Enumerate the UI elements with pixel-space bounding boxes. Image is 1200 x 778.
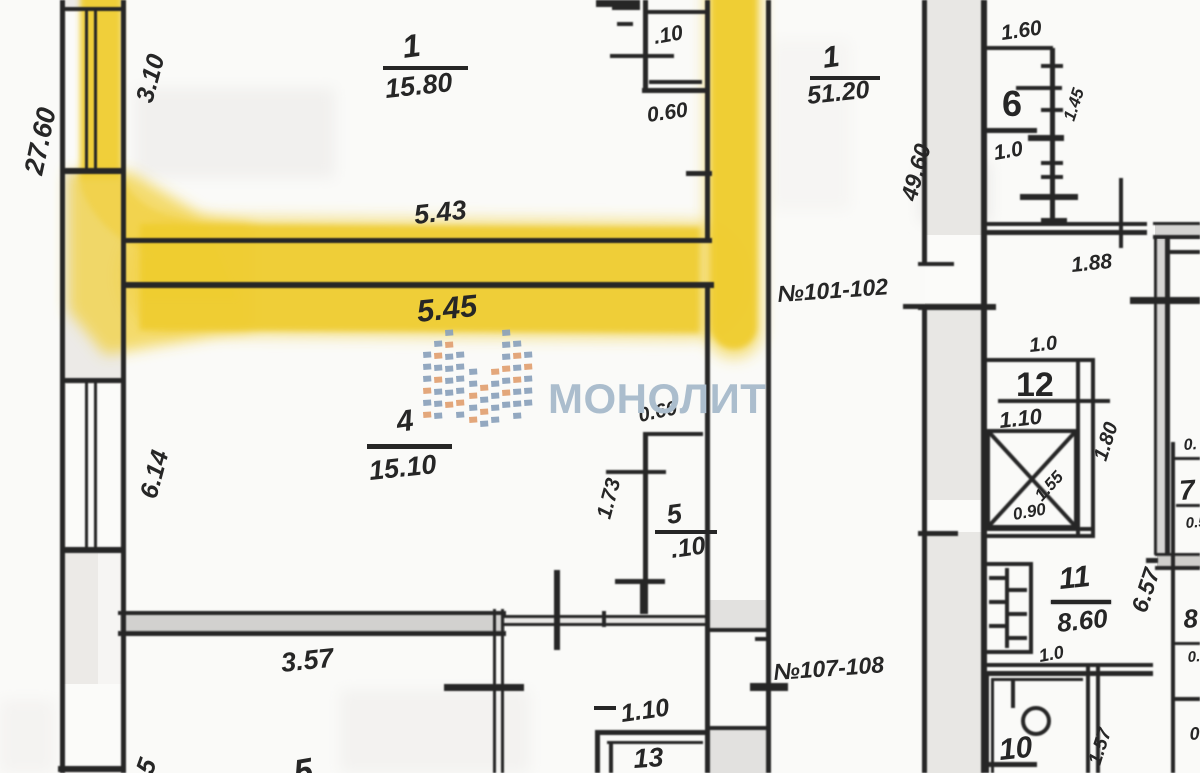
svg-text:6: 6 xyxy=(1002,83,1022,124)
svg-text:0.5: 0.5 xyxy=(1185,514,1200,532)
svg-text:0: 0 xyxy=(1189,723,1200,744)
svg-text:8.60: 8.60 xyxy=(1055,603,1109,638)
svg-text:5.43: 5.43 xyxy=(412,195,467,230)
svg-text:0.: 0. xyxy=(1183,436,1197,454)
svg-text:1.0: 1.0 xyxy=(1037,642,1065,666)
svg-text:10: 10 xyxy=(997,731,1034,767)
svg-text:13: 13 xyxy=(632,742,664,773)
svg-text:.10: .10 xyxy=(669,531,707,564)
svg-text:11: 11 xyxy=(1057,560,1091,596)
svg-text:1.88: 1.88 xyxy=(1070,250,1113,277)
svg-text:3.57: 3.57 xyxy=(279,642,336,678)
svg-text:12: 12 xyxy=(1016,366,1054,404)
svg-text:5.45: 5.45 xyxy=(415,288,479,329)
svg-text:1.0: 1.0 xyxy=(1028,332,1058,357)
svg-text:8: 8 xyxy=(1182,603,1199,634)
svg-text:1.10: 1.10 xyxy=(998,404,1044,433)
svg-text:МОНОЛИТ: МОНОЛИТ xyxy=(548,375,766,422)
svg-text:0.: 0. xyxy=(1187,648,1200,666)
